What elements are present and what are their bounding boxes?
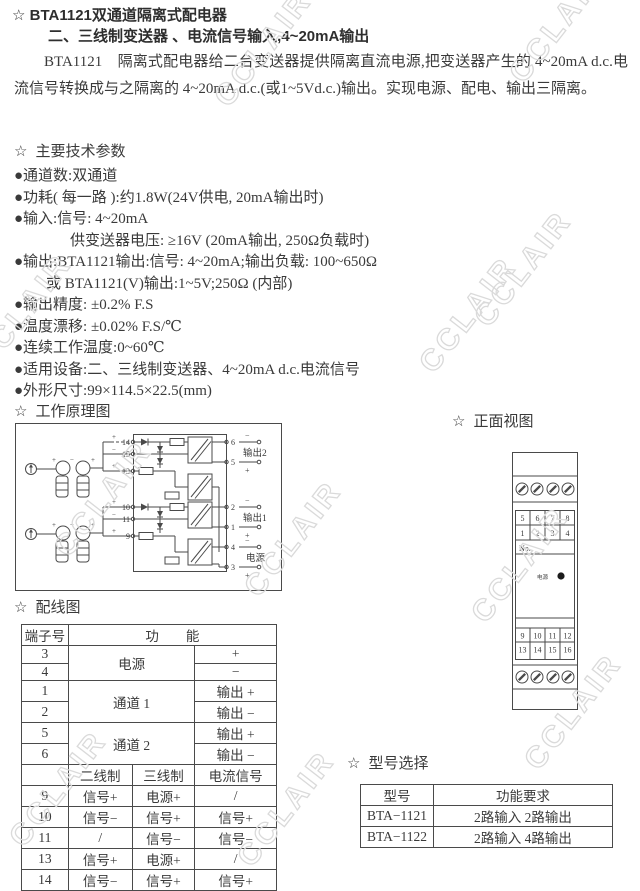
terminal-label: 2 bbox=[231, 503, 235, 512]
terminal-label: 11 bbox=[122, 515, 130, 524]
cell: 通道 2 bbox=[68, 723, 195, 765]
spec-item: ●适用设备:二、三线制变送器、4~20mA d.c.电流信号 bbox=[14, 360, 377, 382]
terminal-number: 7 bbox=[551, 514, 555, 523]
cell: BTA−1121 bbox=[361, 806, 434, 827]
cell: 5 bbox=[22, 723, 69, 744]
cell: 信号− bbox=[68, 807, 132, 828]
specs-heading: 主要技术参数 bbox=[35, 144, 125, 160]
doc-subtitle: 二、三线制变送器 、电流信号输入,4~20mA输出 bbox=[48, 25, 369, 46]
polarity-sign: + bbox=[112, 498, 116, 506]
power-led-label: 电源 bbox=[537, 573, 549, 581]
cell: 电源+ bbox=[132, 849, 195, 870]
polarity-sign: + bbox=[245, 571, 250, 580]
terminal-label: 10 bbox=[122, 503, 130, 512]
doc-title: BTA1121双通道隔离式配电器 bbox=[30, 7, 227, 24]
watermark: CCLAIR bbox=[413, 250, 524, 379]
cell: 2 bbox=[22, 702, 69, 723]
cell: / bbox=[195, 849, 277, 870]
cell: 输出 + bbox=[195, 681, 277, 702]
terminal-number: 1 bbox=[521, 529, 525, 538]
header-cell: 型号 bbox=[361, 785, 434, 806]
cell: 通道 1 bbox=[68, 681, 195, 723]
cell: 信号+ bbox=[68, 786, 132, 807]
terminal-number: 8 bbox=[566, 514, 570, 523]
output2-label: 输出2 bbox=[243, 447, 267, 459]
spec-item: 或 BTA1121(V)输出:1~5V;250Ω (内部) bbox=[14, 274, 377, 296]
star-icon: ☆ bbox=[14, 404, 27, 420]
polarity-sign: + bbox=[52, 521, 56, 529]
cell: 4 bbox=[22, 663, 69, 681]
terminal-number: 16 bbox=[564, 646, 572, 655]
cell: 电流信号 bbox=[195, 765, 277, 786]
terminal-number: 11 bbox=[549, 632, 557, 641]
star-icon: ☆ bbox=[347, 756, 360, 772]
table-row: 14信号−信号+信号+ bbox=[22, 870, 277, 891]
polarity-sign: − bbox=[70, 521, 74, 529]
terminal-label: 5 bbox=[231, 458, 235, 467]
star-icon: ☆ bbox=[14, 600, 27, 616]
cell: 信号− bbox=[195, 828, 277, 849]
terminal-number: 9 bbox=[521, 632, 525, 641]
polarity-sign: − bbox=[245, 536, 250, 545]
model-table: 型号 功能要求 BTA−1121 2路输入 2路输出 BTA−1122 2路输入… bbox=[360, 784, 613, 848]
cell: 信号+ bbox=[195, 870, 277, 891]
table-row: 11/信号−信号− bbox=[22, 828, 277, 849]
cell: BTA−1122 bbox=[361, 827, 434, 848]
cell: 信号+ bbox=[195, 807, 277, 828]
polarity-sign: + bbox=[112, 433, 116, 441]
terminal-label: 4 bbox=[231, 543, 235, 552]
cell: 信号+ bbox=[68, 849, 132, 870]
cell: / bbox=[68, 828, 132, 849]
polarity-sign: + bbox=[245, 466, 250, 475]
terminal-label: 14 bbox=[122, 438, 130, 447]
frontview-heading: 正面视图 bbox=[473, 414, 533, 430]
principle-heading: 工作原理图 bbox=[35, 404, 110, 420]
wiring-table: 端子号 功 能 3 电源 + 4 − 1 通道 1 输出 + 2 输出 − 5 … bbox=[21, 624, 277, 891]
table-row: 9信号+电源+/ bbox=[22, 786, 277, 807]
terminal-label: 15 bbox=[122, 450, 130, 459]
cell: 输出 + bbox=[195, 723, 277, 744]
polarity-sign: + bbox=[52, 456, 56, 464]
cell: − bbox=[195, 663, 277, 681]
spec-list: ●通道数:双通道 ●功耗( 每一路 ):约1.8W(24V供电, 20mA输出时… bbox=[14, 166, 377, 403]
watermark: CCLAIR bbox=[468, 204, 579, 333]
terminal-label: 1 bbox=[231, 523, 235, 532]
terminal-label: 6 bbox=[231, 438, 235, 447]
cell: 输出 − bbox=[195, 744, 277, 765]
front-view-diagram: 5 6 7 8 1 2 3 4 No. 电源 9 10 11 12 13 14 … bbox=[512, 452, 578, 710]
cell: + bbox=[195, 646, 277, 664]
polarity-sign: − bbox=[245, 496, 250, 505]
header-cell: 端子号 bbox=[22, 625, 69, 646]
screw-terminal-icon bbox=[516, 671, 574, 683]
star-icon: ☆ bbox=[452, 414, 465, 430]
cell: / bbox=[195, 786, 277, 807]
table-row: 1 通道 1 输出 + bbox=[22, 681, 277, 702]
section-heading-principle: ☆工作原理图 bbox=[14, 400, 110, 421]
table-row: 5 通道 2 输出 + bbox=[22, 723, 277, 744]
header-cell: 功 能 bbox=[68, 625, 276, 646]
section-heading-models: ☆型号选择 bbox=[347, 752, 428, 773]
terminal-number: 2 bbox=[536, 529, 540, 538]
no-label: No. bbox=[519, 544, 531, 553]
terminal-number: 3 bbox=[551, 529, 555, 538]
polarity-sign: + bbox=[91, 521, 95, 529]
cell: 9 bbox=[22, 786, 69, 807]
table-row: 端子号 功 能 bbox=[22, 625, 277, 646]
intro-paragraph: BTA1121 隔离式配电器给二台变送器提供隔离直流电源,把变送器产生的 4~2… bbox=[14, 49, 628, 103]
polarity-sign: − bbox=[112, 511, 116, 519]
cell: 输出 − bbox=[195, 702, 277, 723]
cell: 11 bbox=[22, 828, 69, 849]
spec-item: ●输出精度: ±0.2% F.S bbox=[14, 295, 377, 317]
datasheet-page: CCLAIR CCLAIR CCLAIR CCLAIR CCLAIR CCLAI… bbox=[0, 0, 640, 891]
star-icon: ☆ bbox=[14, 144, 27, 160]
table-row: BTA−1121 2路输入 2路输出 bbox=[361, 806, 613, 827]
polarity-sign: + bbox=[112, 527, 116, 535]
cell: 2路输入 4路输出 bbox=[433, 827, 612, 848]
wiring-heading: 配线图 bbox=[35, 600, 80, 616]
polarity-sign: − bbox=[112, 446, 116, 454]
spec-item: ●温度漂移: ±0.02% F.S/℃ bbox=[14, 317, 377, 339]
table-row: 13信号+电源+/ bbox=[22, 849, 277, 870]
star-icon: ☆ bbox=[12, 7, 25, 24]
terminal-number: 12 bbox=[564, 632, 572, 641]
cell bbox=[22, 765, 69, 786]
cell: 信号+ bbox=[132, 807, 195, 828]
table-row: 二线制 三线制 电流信号 bbox=[22, 765, 277, 786]
table-row: 3 电源 + bbox=[22, 646, 277, 664]
cell: 二线制 bbox=[68, 765, 132, 786]
screw-terminal-icon bbox=[516, 483, 574, 495]
cell: 电源 bbox=[68, 646, 195, 681]
polarity-sign: + bbox=[112, 462, 116, 470]
cell: 14 bbox=[22, 870, 69, 891]
cell: 1 bbox=[22, 681, 69, 702]
terminal-label: 3 bbox=[231, 563, 235, 572]
table-row: BTA−1122 2路输入 4路输出 bbox=[361, 827, 613, 848]
doc-title-row: ☆ BTA1121双通道隔离式配电器 bbox=[12, 4, 227, 25]
spec-item: ●连续工作温度:0~60℃ bbox=[14, 338, 377, 360]
cell: 信号− bbox=[132, 828, 195, 849]
cell: 6 bbox=[22, 744, 69, 765]
polarity-sign: − bbox=[70, 456, 74, 464]
section-heading-wiring: ☆配线图 bbox=[14, 596, 80, 617]
cell: 信号− bbox=[68, 870, 132, 891]
power-label: 电源 bbox=[246, 552, 266, 564]
table-row: 10信号−信号+信号+ bbox=[22, 807, 277, 828]
terminal-number: 4 bbox=[566, 529, 570, 538]
terminal-number: 15 bbox=[549, 646, 557, 655]
power-led-icon bbox=[557, 572, 564, 579]
header-cell: 功能要求 bbox=[433, 785, 612, 806]
section-heading-frontview: ☆正面视图 bbox=[452, 410, 533, 431]
cell: 2路输入 2路输出 bbox=[433, 806, 612, 827]
models-heading: 型号选择 bbox=[368, 756, 428, 772]
polarity-sign: − bbox=[245, 431, 250, 440]
cell: 信号+ bbox=[132, 870, 195, 891]
terminal-number: 13 bbox=[519, 646, 527, 655]
terminal-label: 13 bbox=[122, 467, 130, 476]
spec-item: 供变送器电压: ≥16V (20mA输出, 250Ω负载时) bbox=[14, 231, 377, 253]
terminal-number: 6 bbox=[536, 514, 540, 523]
cell: 3 bbox=[22, 646, 69, 664]
cell: 10 bbox=[22, 807, 69, 828]
cell: 三线制 bbox=[132, 765, 195, 786]
terminal-number: 10 bbox=[534, 632, 542, 641]
output1-label: 输出1 bbox=[243, 512, 267, 524]
spec-item: ●功耗( 每一路 ):约1.8W(24V供电, 20mA输出时) bbox=[14, 188, 377, 210]
spec-item: ●输出:BTA1121输出:信号: 4~20mA;输出负载: 100~650Ω bbox=[14, 252, 377, 274]
spec-item: ●输入:信号: 4~20mA bbox=[14, 209, 377, 231]
table-row: 型号 功能要求 bbox=[361, 785, 613, 806]
cell: 13 bbox=[22, 849, 69, 870]
polarity-sign: + bbox=[91, 456, 95, 464]
terminal-number: 14 bbox=[534, 646, 542, 655]
section-heading-specs: ☆主要技术参数 bbox=[14, 140, 125, 161]
principle-diagram: 14 15 13 + − + + − + bbox=[15, 423, 282, 591]
terminal-number: 5 bbox=[521, 514, 525, 523]
spec-item: ●通道数:双通道 bbox=[14, 166, 377, 188]
cell: 电源+ bbox=[132, 786, 195, 807]
terminal-label: 9 bbox=[126, 532, 130, 541]
